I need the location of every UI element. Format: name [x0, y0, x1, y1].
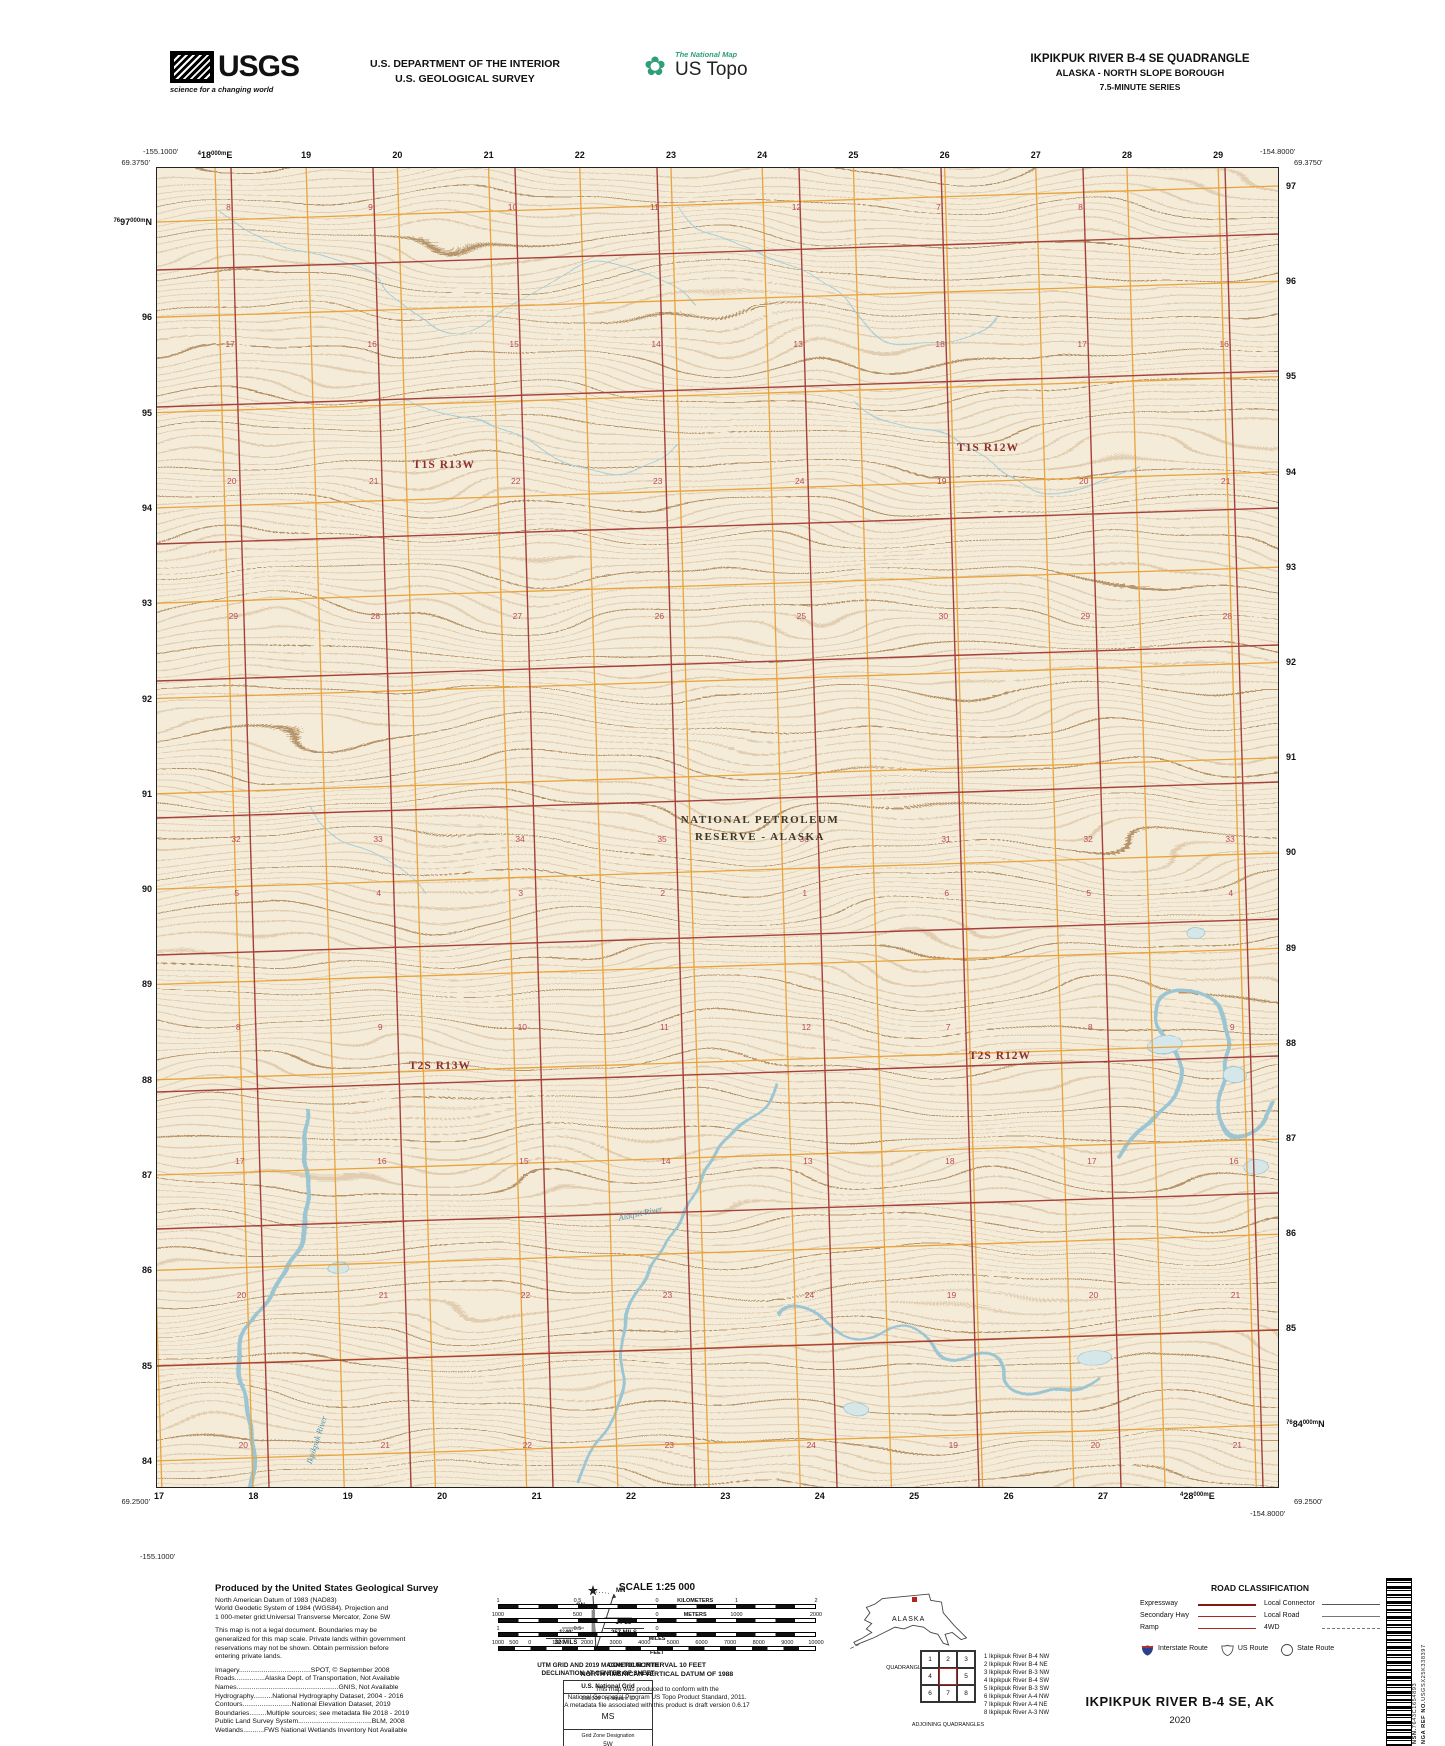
- section-number: 11: [650, 202, 659, 212]
- grid-label: 89: [1286, 943, 1296, 953]
- grid-label: 91: [1286, 752, 1296, 762]
- section-number: 4: [1228, 888, 1233, 898]
- corner-coord-top-left-lon: -155.1000': [143, 147, 178, 156]
- fourwd-line-sample: [1322, 1628, 1380, 1629]
- grid-label: 418000mE: [198, 150, 233, 160]
- section-number: 17: [1087, 1156, 1096, 1166]
- grid-label: 94: [1286, 467, 1296, 477]
- section-number: 16: [1229, 1156, 1238, 1166]
- grid-label: 93: [1286, 562, 1296, 572]
- grid-label: 92: [1286, 657, 1296, 667]
- section-number: 23: [663, 1290, 672, 1300]
- section-number: 15: [509, 339, 518, 349]
- road-classification-title: ROAD CLASSIFICATION: [1140, 1584, 1380, 1593]
- section-number: 3: [518, 888, 523, 898]
- corner-coord-bottom-right-lat: 69.2500': [1294, 1497, 1323, 1506]
- section-number: 19: [937, 476, 946, 486]
- scale-bar: 1000500010002000300040005000600070008000…: [498, 1639, 816, 1653]
- road-label-local-road: Local Road: [1264, 1612, 1322, 1621]
- local-road-line-sample: [1322, 1616, 1380, 1617]
- quadrangle-heading: IKPIKPUK RIVER B-4 SE QUADRANGLE ALASKA …: [990, 53, 1290, 92]
- grid-label: 21: [484, 150, 494, 160]
- section-number: 2: [660, 888, 665, 898]
- section-number: 21: [381, 1440, 390, 1450]
- list-item: Roads................Alaska Dept. of Tra…: [215, 1675, 505, 1684]
- nsn-value: 7643C1654893: [1412, 1683, 1418, 1728]
- list-item: This map was produced to conform with th…: [498, 1686, 816, 1694]
- vertical-datum-note: NORTH AMERICAN VERTICAL DATUM OF 1988: [498, 1670, 816, 1679]
- section-number: 21: [369, 476, 378, 486]
- list-item: 5: [957, 1668, 975, 1685]
- section-number: 20: [237, 1290, 246, 1300]
- list-item: Imagery.................................…: [215, 1667, 505, 1676]
- reserve-label: NATIONAL PETROLEUM RESERVE - ALASKA: [640, 812, 880, 846]
- township-label-t2s-r12w: T2S R12W: [969, 1050, 1031, 1062]
- secondary-line-sample: [1198, 1616, 1256, 1617]
- list-item: 2 Ikpikpuk River B-4 NE: [984, 1661, 1049, 1669]
- grid-label: 27: [1098, 1491, 1108, 1501]
- section-number: 26: [655, 611, 664, 621]
- list-item: 1 000-meter grid:Universal Transverse Me…: [215, 1614, 505, 1623]
- list-item: 4: [921, 1668, 939, 1685]
- section-number: 23: [665, 1440, 674, 1450]
- list-item: 6: [921, 1685, 939, 1702]
- scale-block: SCALE 1:25 000 10.5012KILOMETERS10005000…: [498, 1584, 816, 1711]
- section-number: 29: [1081, 611, 1090, 621]
- section-number: 9: [368, 202, 373, 212]
- state-route-circle-icon: [1280, 1643, 1294, 1657]
- sheet-title: IKPIKPUK RIVER B-4 SE, AK: [1030, 1694, 1330, 1709]
- section-number: 10: [518, 1022, 527, 1032]
- section-number: 28: [371, 611, 380, 621]
- usgs-logo-text: USGS: [218, 50, 299, 84]
- grid-label: 97: [1286, 181, 1296, 191]
- production-credits: Produced by the United States Geological…: [215, 1585, 505, 1741]
- interstate-shield-icon: [1140, 1643, 1155, 1657]
- grid-label: 25: [848, 150, 858, 160]
- nga-line: NGA REF NO.USGSX25K338397: [1421, 1578, 1430, 1744]
- section-number: 17: [235, 1156, 244, 1166]
- interstate-route-label: Interstate Route: [1158, 1645, 1208, 1654]
- section-number: 22: [511, 476, 520, 486]
- grid-label: 24: [757, 150, 767, 160]
- grid-label: 87: [1286, 1133, 1296, 1143]
- section-number: 18: [945, 1156, 954, 1166]
- road-label-secondary: Secondary Hwy: [1140, 1612, 1198, 1621]
- grid-label: 85: [1286, 1323, 1296, 1333]
- grid-label: 89: [142, 979, 152, 989]
- list-item: 5 Ikpikpuk River B-3 SW: [984, 1685, 1049, 1693]
- grid-label: 88: [1286, 1038, 1296, 1048]
- road-label-ramp: Ramp: [1140, 1624, 1198, 1633]
- section-number: 24: [807, 1440, 816, 1450]
- grid-label: 23: [720, 1491, 730, 1501]
- section-number: 29: [229, 611, 238, 621]
- section-number: 21: [1231, 1290, 1240, 1300]
- list-item: Public Land Survey System...............…: [215, 1718, 505, 1727]
- section-number: 20: [239, 1440, 248, 1450]
- list-item: entering private lands.: [215, 1653, 505, 1662]
- section-number: 14: [651, 339, 660, 349]
- section-number: 7: [936, 202, 941, 212]
- grid-label: 95: [142, 408, 152, 418]
- list-item: Wetlands...........FWS National Wetlands…: [215, 1727, 505, 1736]
- list-item: 1: [921, 1651, 939, 1668]
- grid-label: 7684000mN: [1286, 1419, 1325, 1429]
- grid-label: 428000mE: [1180, 1491, 1215, 1501]
- scale-title: SCALE 1:25 000: [498, 1584, 816, 1593]
- section-number: 13: [803, 1156, 812, 1166]
- grid-label: 28: [1122, 150, 1132, 160]
- section-number: 4: [376, 888, 381, 898]
- township-label-t1s-r13w: T1S R13W: [413, 459, 475, 471]
- grid-label: 23: [666, 150, 676, 160]
- corner-coord-bottom-left-lat: 69.2500': [121, 1497, 150, 1506]
- grid-label: 86: [142, 1265, 152, 1275]
- grid-label: 22: [626, 1491, 636, 1501]
- section-number: 7: [946, 1022, 951, 1032]
- section-number: 33: [373, 834, 382, 844]
- list-item: Names...................................…: [215, 1684, 505, 1693]
- section-number: 1: [802, 888, 807, 898]
- section-number: 33: [1225, 834, 1234, 844]
- section-number: 12: [792, 202, 801, 212]
- grid-label: 19: [343, 1491, 353, 1501]
- nga-value: USGSX25K338397: [1421, 1644, 1427, 1701]
- section-number: 16: [1219, 339, 1228, 349]
- us-route-label: US Route: [1238, 1645, 1268, 1654]
- credits-title: Produced by the United States Geological…: [215, 1585, 505, 1594]
- list-item: Boundaries.........Multiple sources; see…: [215, 1710, 505, 1719]
- grid-label: 22: [575, 150, 585, 160]
- section-number: 8: [236, 1022, 241, 1032]
- state-route-label: State Route: [1297, 1645, 1334, 1654]
- list-item: North American Datum of 1983 (NAD83): [215, 1597, 505, 1606]
- township-label-t2s-r13w: T2S R13W: [409, 1060, 471, 1072]
- section-number: 21: [379, 1290, 388, 1300]
- section-number: 20: [227, 476, 236, 486]
- grid-label: 20: [392, 150, 402, 160]
- grid-label: 93: [142, 598, 152, 608]
- list-item: 8: [957, 1685, 975, 1702]
- reserve-label-line1: NATIONAL PETROLEUM: [640, 812, 880, 829]
- grid-label: 92: [142, 694, 152, 704]
- grid-label: 84: [142, 1456, 152, 1466]
- barcode-stripes: [1386, 1578, 1412, 1746]
- grid-label: 19: [301, 150, 311, 160]
- grid-label: 29: [1213, 150, 1223, 160]
- section-number: 18: [935, 339, 944, 349]
- credits-legal: This map is not a legal document. Bounda…: [215, 1627, 505, 1661]
- alaska-label: ALASKA: [892, 1616, 925, 1625]
- section-number: 32: [231, 834, 240, 844]
- section-number: 19: [947, 1290, 956, 1300]
- section-number: 22: [523, 1440, 532, 1450]
- nsn-label: NSN.: [1412, 1728, 1418, 1744]
- section-number: 20: [1079, 476, 1088, 486]
- section-number: 24: [805, 1290, 814, 1300]
- grid-label: 27: [1031, 150, 1041, 160]
- section-number: 25: [797, 611, 806, 621]
- grid-label: 85: [142, 1361, 152, 1371]
- scale-bar: 10.5012KILOMETERS: [498, 1597, 816, 1611]
- usgs-wave-icon: [170, 51, 214, 83]
- list-item: National Geospatial Program US Topo Prod…: [498, 1694, 816, 1702]
- ustopo-label: US Topo: [675, 59, 748, 81]
- grid-label: 90: [142, 884, 152, 894]
- dept-line1: U.S. DEPARTMENT OF THE INTERIOR: [340, 57, 590, 72]
- grid-label: 18: [248, 1491, 258, 1501]
- section-number: 9: [378, 1022, 383, 1032]
- scale-bar: 1000500010002000METERS: [498, 1611, 816, 1625]
- usng-zone-value: 5W: [564, 1740, 652, 1746]
- section-number: 11: [660, 1022, 669, 1032]
- us-route-shield-icon: [1220, 1643, 1235, 1657]
- section-number: 16: [377, 1156, 386, 1166]
- grid-label: 20: [437, 1491, 447, 1501]
- nsn-line: NSN.7643C1654893: [1412, 1578, 1421, 1744]
- section-number: 12: [802, 1022, 811, 1032]
- grid-label: 21: [532, 1491, 542, 1501]
- grid-label: 94: [142, 503, 152, 513]
- list-item: This map is not a legal document. Bounda…: [215, 1627, 505, 1636]
- section-number: 10: [508, 202, 517, 212]
- grid-label: 96: [142, 312, 152, 322]
- list-item: 2: [939, 1651, 957, 1668]
- section-number: 24: [795, 476, 804, 486]
- section-number: 20: [1091, 1440, 1100, 1450]
- corner-coord-top-right-lon: -154.8000': [1260, 147, 1295, 156]
- corner-coord-top-left-lat: 69.3750': [121, 158, 150, 167]
- section-number: 8: [1078, 202, 1083, 212]
- ramp-line-sample: [1198, 1628, 1256, 1629]
- credits-datum: North American Datum of 1983 (NAD83)Worl…: [215, 1597, 505, 1623]
- list-item: Hydrography..........National Hydrograph…: [215, 1693, 505, 1702]
- list-item: reservations may not be shown. Obtain pe…: [215, 1645, 505, 1654]
- grid-label: 88: [142, 1075, 152, 1085]
- grid-label: 17: [154, 1491, 164, 1501]
- list-item: World Geodetic System of 1984 (WGS84). P…: [215, 1605, 505, 1614]
- section-number: 14: [661, 1156, 670, 1166]
- section-number: 6: [944, 888, 949, 898]
- list-item: 4 Ikpikpuk River B-4 SW: [984, 1677, 1049, 1685]
- grid-label: 96: [1286, 276, 1296, 286]
- corner-coord-bottom-left-lon: -155.1000': [140, 1552, 175, 1561]
- grid-label: 86: [1286, 1228, 1296, 1238]
- section-number: 5: [1086, 888, 1091, 898]
- conformance-note: This map was produced to conform with th…: [498, 1686, 816, 1711]
- sheet-year: 2020: [1030, 1715, 1330, 1726]
- corner-coord-bottom-right-lon: -154.8000': [1250, 1509, 1285, 1518]
- grid-label: 90: [1286, 847, 1296, 857]
- dept-line2: U.S. GEOLOGICAL SURVEY: [340, 72, 590, 87]
- usgs-tagline: science for a changing world: [170, 85, 345, 94]
- section-number: 30: [939, 611, 948, 621]
- list-item: 3: [957, 1651, 975, 1668]
- contour-interval-note: CONTOUR INTERVAL 10 FEET: [498, 1661, 816, 1670]
- grid-label: 95: [1286, 371, 1296, 381]
- section-number: 32: [1083, 834, 1092, 844]
- road-label-local-connector: Local Connector: [1264, 1600, 1322, 1609]
- local-connector-line-sample: [1322, 1604, 1380, 1605]
- list-item: generalized for this map scale. Private …: [215, 1636, 505, 1645]
- quad-location-marker: [912, 1597, 917, 1602]
- ustopo-logo: ✿ The National Map US Topo: [640, 50, 748, 81]
- township-label-t1s-r12w: T1S R12W: [957, 442, 1019, 454]
- grid-label: 25: [909, 1491, 919, 1501]
- quad-title: IKPIKPUK RIVER B-4 SE QUADRANGLE: [990, 53, 1290, 65]
- usgs-logo: USGS science for a changing world: [170, 50, 345, 94]
- road-classification: ROAD CLASSIFICATION Expressway Secondary…: [1140, 1584, 1380, 1657]
- national-map-icon: ✿: [640, 51, 670, 81]
- nga-label: NGA REF NO.: [1421, 1701, 1427, 1744]
- grid-label: 7697000mN: [113, 217, 152, 227]
- quad-subtitle: ALASKA - NORTH SLOPE BOROUGH: [990, 68, 1290, 79]
- grid-label: 26: [1004, 1491, 1014, 1501]
- road-label-expressway: Expressway: [1140, 1600, 1198, 1609]
- section-number: 5: [234, 888, 239, 898]
- quad-series: 7.5-MINUTE SERIES: [990, 82, 1290, 92]
- section-number: 28: [1223, 611, 1232, 621]
- topo-sheet: USGS science for a changing world U.S. D…: [0, 0, 1445, 1746]
- list-item: 7: [939, 1685, 957, 1702]
- adjoining-caption: ADJOINING QUADRANGLES: [893, 1722, 1003, 1728]
- section-number: 8: [226, 202, 231, 212]
- national-map-label: The National Map: [675, 50, 748, 59]
- section-number: 22: [521, 1290, 530, 1300]
- section-number: 34: [515, 834, 524, 844]
- grid-label: 87: [142, 1170, 152, 1180]
- section-number: 8: [1088, 1022, 1093, 1032]
- grid-label: 24: [815, 1491, 825, 1501]
- list-item: 1 Ikpikpuk River B-4 NW: [984, 1653, 1049, 1661]
- usng-zone-label: Grid Zone Designation: [564, 1729, 652, 1741]
- section-number: 23: [653, 476, 662, 486]
- corner-coord-top-right-lat: 69.3750': [1294, 158, 1323, 167]
- grid-label: 91: [142, 789, 152, 799]
- road-label-4wd: 4WD: [1264, 1624, 1322, 1633]
- list-item: Contours..........................Nation…: [215, 1701, 505, 1710]
- sheet-title-block: IKPIKPUK RIVER B-4 SE, AK 2020: [1030, 1694, 1330, 1726]
- adjoining-grid: 12345678: [920, 1650, 976, 1703]
- section-number: 13: [793, 339, 802, 349]
- section-number: 31: [941, 834, 950, 844]
- list-item: [939, 1668, 957, 1685]
- barcode-block: NSN.7643C1654893 NGA REF NO.USGSX25K3383…: [1386, 1578, 1430, 1746]
- section-number: 17: [225, 339, 234, 349]
- list-item: 3 Ikpikpuk River B-3 NW: [984, 1669, 1049, 1677]
- scale-bars: 10.5012KILOMETERS1000500010002000METERS1…: [498, 1597, 816, 1653]
- section-number: 21: [1233, 1440, 1242, 1450]
- reserve-label-line2: RESERVE - ALASKA: [640, 829, 880, 846]
- section-number: 16: [367, 339, 376, 349]
- expressway-line-sample: [1198, 1604, 1256, 1606]
- section-number: 21: [1221, 476, 1230, 486]
- department-heading: U.S. DEPARTMENT OF THE INTERIOR U.S. GEO…: [340, 57, 590, 87]
- section-number: 9: [1230, 1022, 1235, 1032]
- credits-sources: Imagery.................................…: [215, 1667, 505, 1736]
- section-number: 20: [1089, 1290, 1098, 1300]
- scale-bar: 10.50MILES: [498, 1625, 816, 1639]
- section-number: 15: [519, 1156, 528, 1166]
- grid-label: 26: [940, 150, 950, 160]
- section-number: 19: [949, 1440, 958, 1450]
- section-number: 27: [513, 611, 522, 621]
- list-item: A metadata file associated with this pro…: [498, 1702, 816, 1710]
- section-number: 17: [1077, 339, 1086, 349]
